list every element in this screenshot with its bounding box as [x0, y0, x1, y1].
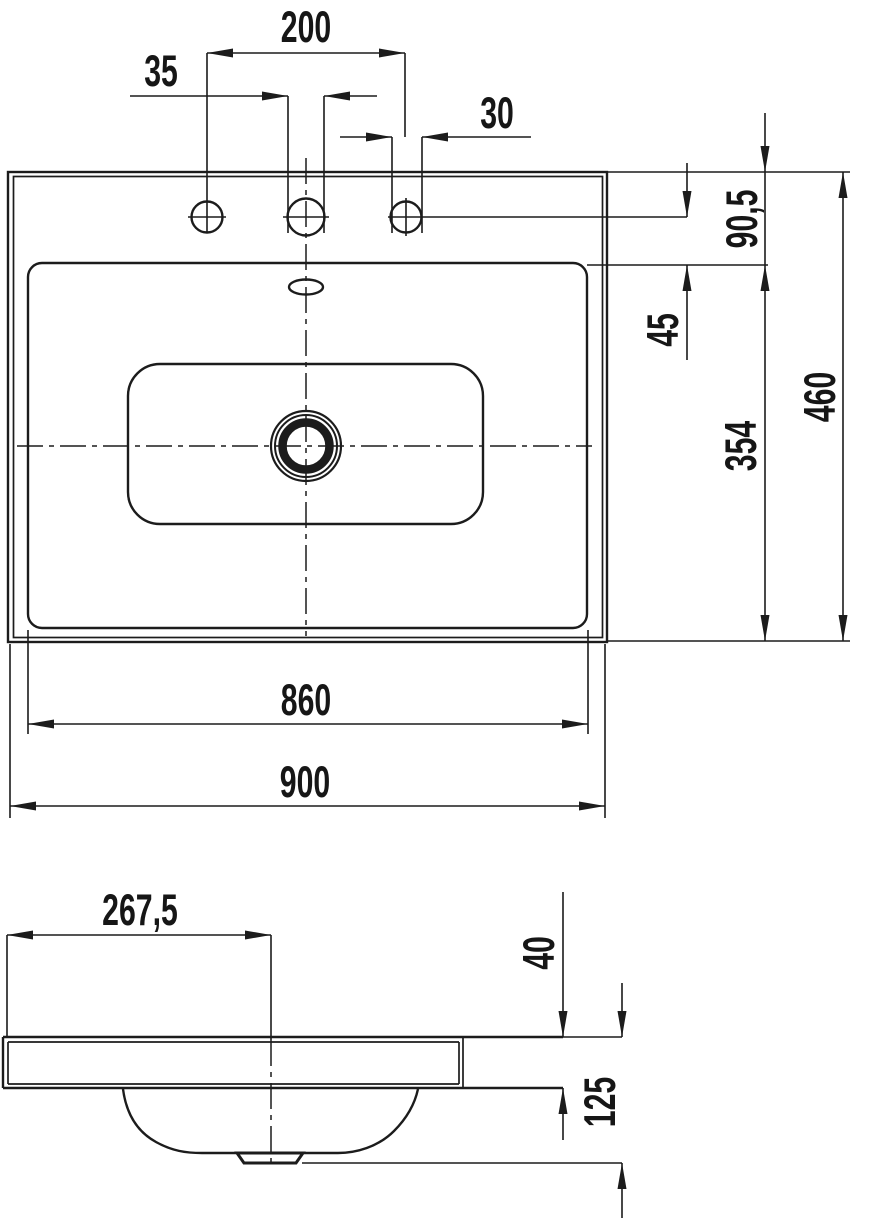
dim-hole-spacing: 200: [281, 3, 331, 52]
dim-line-edge-to-drain: [7, 935, 271, 1037]
top-view: [8, 158, 607, 642]
side-dimensions: 267,5 40 125: [7, 886, 627, 1218]
dim-overall-width: 900: [280, 758, 330, 807]
dim-slab-thickness: 40: [515, 936, 564, 970]
drain-boss: [237, 1153, 303, 1163]
dim-back-edge-to-hole-center: 90,5: [718, 190, 767, 249]
right-dimensions: 90,5 45 354 460: [388, 113, 850, 641]
hole-crosshairs: [188, 198, 406, 236]
slab-inner-lines: [8, 1037, 463, 1088]
dim-edge-to-drain-center: 267,5: [102, 886, 178, 935]
top-dimensions: 200 35 30: [130, 3, 531, 233]
dim-center-hole-diameter: 35: [144, 47, 178, 96]
dim-side-hole-diameter: 30: [480, 89, 514, 138]
bottom-dimensions: 860 900: [10, 630, 605, 818]
dim-line-side-hole: [340, 137, 531, 233]
basin-outer-edge-inner-line: [14, 177, 603, 638]
dim-rim-width: 860: [281, 676, 331, 725]
dim-overall-height: 125: [576, 1077, 625, 1127]
right-extension-lines: [388, 172, 850, 641]
dim-line-center-hole: [130, 96, 377, 233]
dim-overall-depth: 460: [796, 372, 845, 422]
washbasin-drawing: 200 35 30 90,5 45 354 460 860: [0, 0, 870, 1220]
dim-hole-center-to-rim: 45: [639, 313, 688, 347]
technical-drawing-sheet: 200 35 30 90,5 45 354 460 860: [0, 0, 870, 1220]
dim-rim-depth: 354: [717, 421, 766, 471]
slab-outline: [3, 1037, 563, 1088]
basin-outer-edge: [8, 172, 607, 642]
